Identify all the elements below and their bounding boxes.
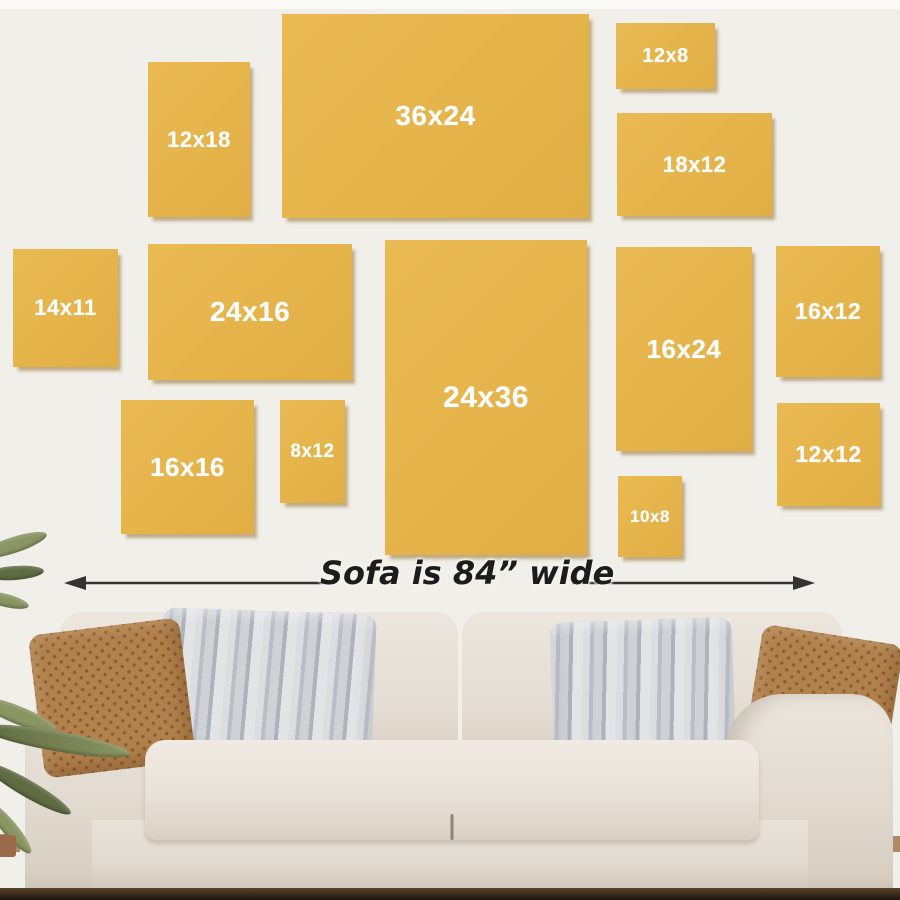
plant-decoration (0, 540, 170, 900)
sofa-seat-cushion (145, 740, 759, 840)
plant-leaf (0, 588, 30, 612)
plant-leaf (0, 756, 75, 821)
plant-leaf (0, 564, 44, 582)
canvas-size-guide: 12x1836x2412x818x1214x1124x1624x3616x241… (0, 0, 900, 900)
plant-pot (0, 835, 16, 857)
plant-leaf (0, 718, 131, 764)
